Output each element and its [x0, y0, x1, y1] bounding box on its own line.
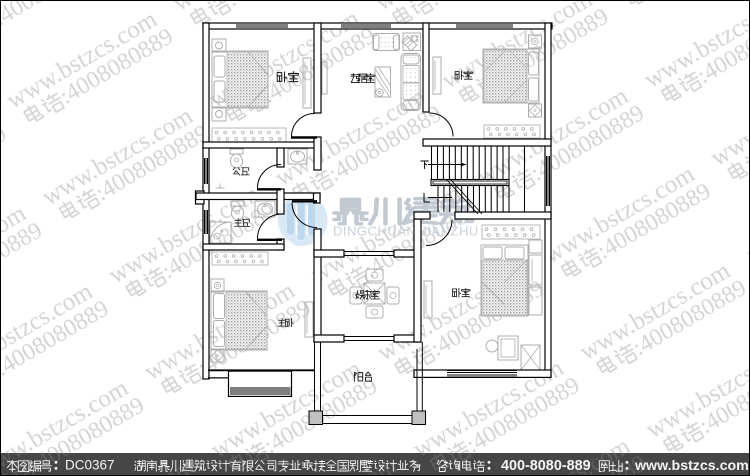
svg-text:DINGCHUAN JIANZHU: DINGCHUAN JIANZHU [333, 224, 479, 239]
svg-text:DC0367: DC0367 [65, 458, 115, 473]
svg-text:www.bstzcs.com: www.bstzcs.com [634, 458, 749, 474]
svg-text:400-8080-889: 400-8080-889 [501, 458, 591, 474]
